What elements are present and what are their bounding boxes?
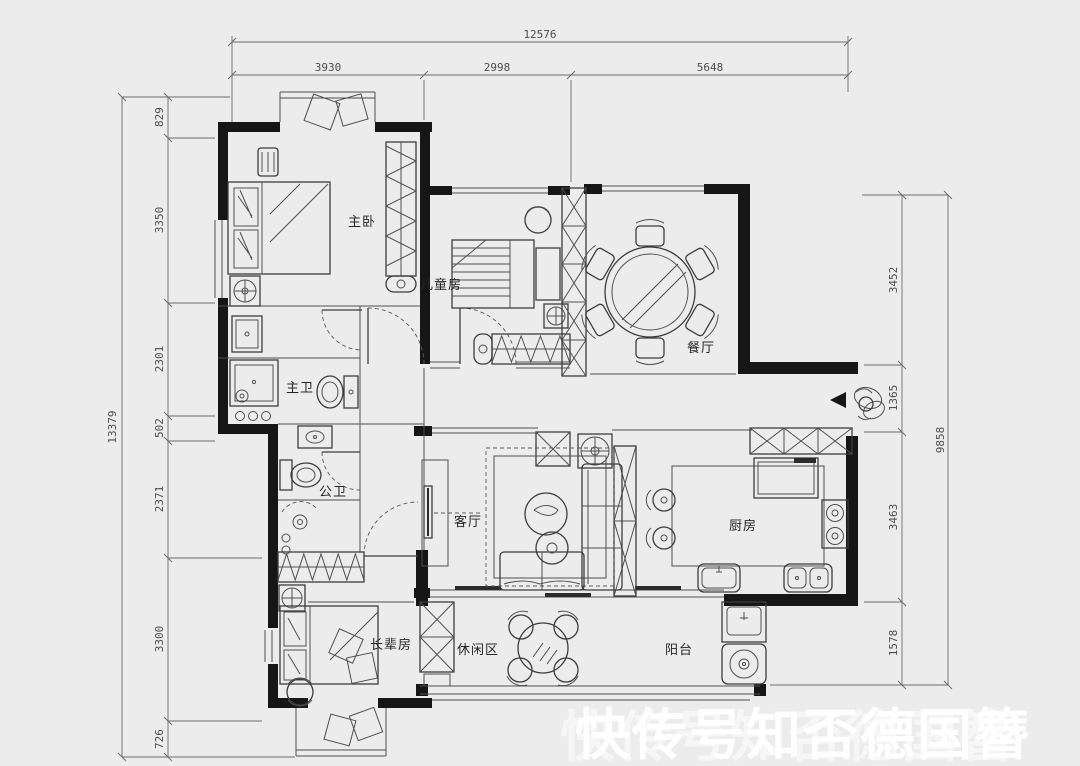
dim-left-seg-5: 3300 (153, 626, 166, 653)
bay-cushion (324, 714, 356, 746)
bed-pillow (347, 653, 378, 684)
master-bath-fixtures (230, 316, 358, 421)
dim-top-total: 12576 (523, 28, 556, 41)
balcony-table (518, 623, 568, 673)
master-bedroom-furniture (228, 142, 416, 306)
guest-bath-fixtures (278, 426, 364, 611)
balcony-cabinet (420, 602, 454, 686)
balcony-chair (508, 611, 533, 639)
bay-cushion (304, 94, 340, 130)
elder-room-furniture (280, 606, 378, 706)
bay-cushion (349, 707, 382, 740)
vanity-sink (298, 426, 332, 448)
label-living: 客厅 (454, 514, 482, 530)
dim-left-total: 13379 (106, 410, 119, 443)
dim-left-seg-1: 3350 (153, 207, 166, 234)
toilet (317, 376, 358, 408)
dimension-right: 9858 3452 1365 3463 1578 (770, 191, 952, 689)
dim-right-seg-2: 3463 (887, 504, 900, 531)
tall-cabinet-column (562, 188, 586, 376)
label-kitchen: 厨房 (729, 518, 757, 534)
walls (218, 122, 858, 708)
x-cabinet-box (536, 432, 570, 466)
label-master-bedroom: 主卧 (348, 215, 376, 230)
door-arc-kids (460, 308, 516, 364)
balcony-chair (554, 658, 578, 686)
door-arc-master (368, 308, 424, 364)
bed-pillow (329, 629, 363, 663)
ceiling-fan-icon (544, 304, 568, 328)
double-sink (784, 564, 832, 592)
floor-plan-drawing: 12576 3930 2998 5648 13379 829 3350 2301… (0, 0, 1080, 766)
label-kids-room: 儿童房 (420, 277, 462, 293)
laundry-sink (722, 602, 766, 642)
kitchen-furniture (646, 428, 852, 592)
tv-wall (422, 460, 480, 566)
dim-left-seg-2: 2301 (153, 346, 166, 373)
toilet (280, 460, 321, 490)
desk (536, 248, 560, 300)
fridge (754, 458, 818, 498)
dim-left-seg-6: 726 (153, 729, 166, 749)
dim-right-seg-0: 3452 (887, 267, 900, 294)
balcony-chair (507, 658, 532, 686)
living-cabinet-column (614, 446, 636, 596)
dim-top-seg-2: 5648 (697, 61, 724, 74)
island-counter (672, 466, 824, 566)
label-dining: 餐厅 (687, 340, 715, 356)
bar-stool (646, 527, 675, 549)
ceiling-fan-icon (230, 276, 260, 306)
door-arc-elder (364, 502, 418, 556)
label-balcony: 阳台 (665, 643, 693, 658)
label-leisure: 休闲区 (457, 643, 499, 658)
balcony-chair (554, 611, 578, 639)
living-room-furniture (422, 432, 636, 596)
master-wardrobe (386, 142, 416, 292)
label-guest-bath: 公卫 (319, 485, 347, 500)
bay-cushion (336, 94, 368, 126)
rug (486, 448, 614, 586)
ceiling-fan-icon (279, 585, 305, 611)
floor-plan-page: 12576 3930 2998 5648 13379 829 3350 2301… (0, 0, 1080, 766)
desk-chair (525, 207, 551, 233)
shower (230, 360, 278, 406)
plant-icon (851, 384, 887, 422)
kitchen-sink (698, 564, 740, 592)
shower (282, 502, 318, 529)
label-elder-room: 长辈房 (370, 637, 412, 653)
bar-stool (646, 489, 675, 511)
entry-marker (830, 384, 887, 422)
watermark-text: 快传号知否德国簪 (575, 690, 1031, 766)
label-master-bath: 主卫 (286, 381, 314, 396)
kids-wardrobe (474, 334, 570, 364)
dim-right-seg-1: 1365 (887, 385, 900, 412)
dimension-top: 12576 3930 2998 5648 (228, 28, 852, 182)
dim-left-seg-3: 502 (153, 418, 166, 438)
elder-bed (280, 606, 378, 684)
hall-wardrobe (278, 552, 364, 582)
stove (822, 500, 848, 548)
dim-right-seg-3: 1578 (887, 630, 900, 657)
ceiling-fan-icon (578, 434, 612, 468)
sofa (500, 464, 622, 590)
kids-bed (452, 240, 534, 308)
dim-top-seg-1: 2998 (484, 61, 511, 74)
washing-machine (722, 644, 766, 684)
dim-right-total: 9858 (934, 427, 947, 454)
dim-top-seg-0: 3930 (315, 61, 342, 74)
dim-left-seg-4: 2371 (153, 486, 166, 513)
master-bed (228, 182, 330, 274)
upper-cabinets (750, 428, 852, 454)
coffee-table (525, 493, 568, 564)
dim-left-seg-0: 829 (153, 107, 166, 127)
door-arc-master-bath (322, 310, 362, 350)
left-triangle-icon (830, 392, 846, 408)
